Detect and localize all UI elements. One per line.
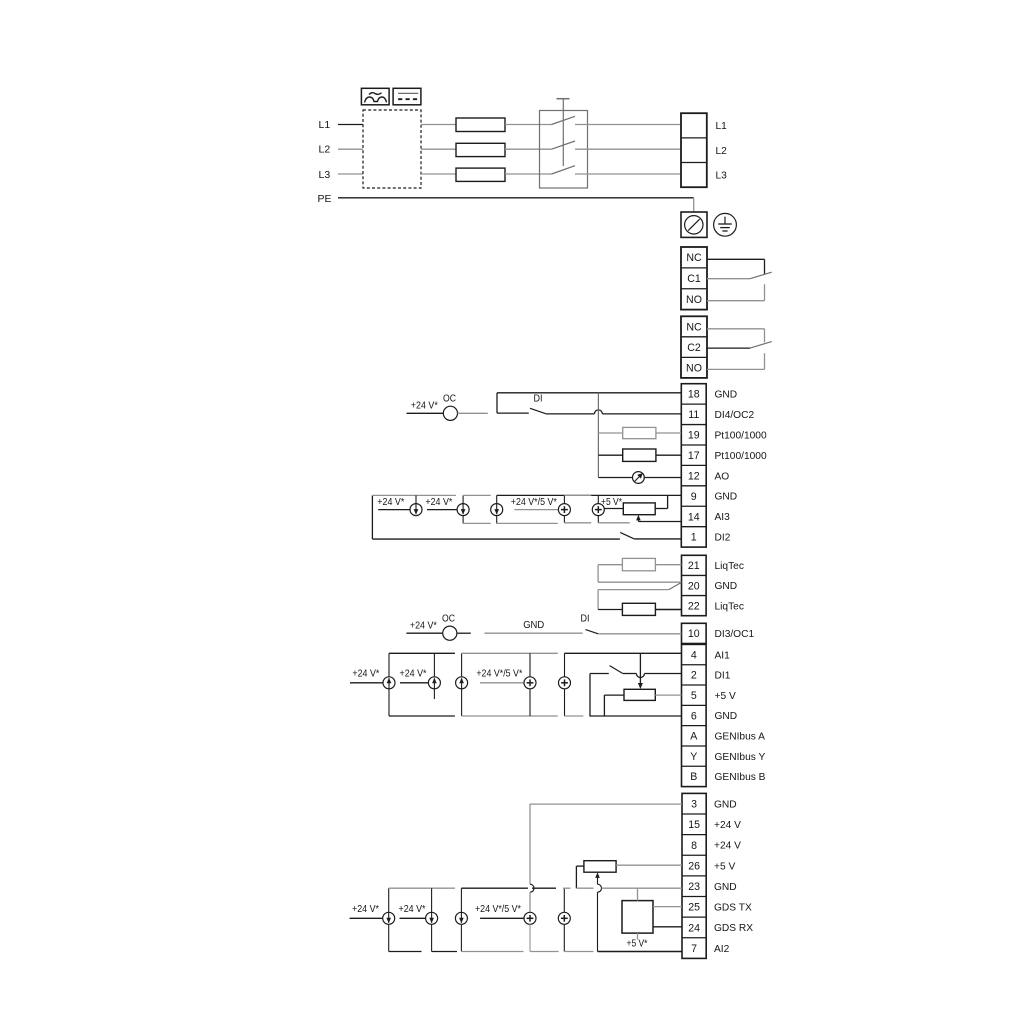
svg-text:11: 11 [688,409,699,421]
svg-text:+24 V*/5 V*: +24 V*/5 V* [476,668,522,680]
svg-text:+24 V: +24 V [714,820,741,831]
svg-text:GDS TX: GDS TX [714,903,752,914]
svg-text:Pt100/1000: Pt100/1000 [715,451,767,462]
svg-text:Y: Y [690,751,697,763]
svg-text:19: 19 [688,430,700,442]
svg-text:C2: C2 [687,342,701,354]
svg-text:22: 22 [688,600,700,612]
svg-text:GND: GND [715,581,738,592]
svg-text:NC: NC [686,321,702,333]
svg-text:+24 V*: +24 V* [410,620,437,632]
svg-text:10: 10 [688,628,700,640]
svg-text:DI: DI [534,394,543,405]
svg-text:+5 V*: +5 V* [627,939,648,950]
svg-text:NC: NC [686,252,702,264]
svg-text:2: 2 [691,670,697,682]
svg-text:23: 23 [688,881,700,893]
svg-text:5: 5 [691,690,697,702]
svg-text:AO: AO [715,471,730,482]
svg-text:12: 12 [688,470,700,482]
svg-text:GENIbus A: GENIbus A [715,732,766,743]
svg-text:9: 9 [691,491,697,503]
svg-text:LiqTec: LiqTec [715,601,744,612]
svg-text:4: 4 [691,649,697,661]
svg-text:+24 V*: +24 V* [425,496,452,508]
svg-text:GND: GND [715,492,738,503]
svg-text:DI2: DI2 [715,533,731,544]
svg-text:+24 V*: +24 V* [400,668,427,680]
svg-text:AI3: AI3 [715,512,731,523]
svg-text:GND: GND [714,799,737,810]
svg-text:OC: OC [442,613,455,624]
svg-text:LiqTec: LiqTec [715,561,744,572]
svg-text:18: 18 [688,389,700,401]
svg-text:+24 V*/5 V*: +24 V*/5 V* [475,903,521,915]
svg-text:15: 15 [688,819,700,831]
svg-text:GND: GND [714,882,737,893]
svg-text:+24 V*: +24 V* [352,903,379,915]
svg-text:L2: L2 [319,144,331,156]
svg-text:Pt100/1000: Pt100/1000 [715,430,767,441]
svg-text:1: 1 [691,532,697,544]
svg-text:14: 14 [688,511,700,523]
svg-text:C1: C1 [687,273,701,285]
svg-text:B: B [690,771,697,783]
svg-text:21: 21 [688,560,700,572]
svg-text:GND: GND [715,711,738,722]
svg-text:L1: L1 [716,121,728,132]
svg-text:20: 20 [688,580,700,592]
svg-text:L3: L3 [319,169,331,181]
svg-text:AI2: AI2 [714,944,730,955]
svg-text:+24 V*: +24 V* [352,668,379,680]
svg-text:GND: GND [523,620,544,631]
svg-text:DI4/OC2: DI4/OC2 [715,410,755,421]
svg-text:GENIbus B: GENIbus B [715,772,766,783]
svg-text:+24 V*: +24 V* [377,496,404,508]
svg-text:L2: L2 [716,146,728,157]
svg-text:+24 V*: +24 V* [399,903,426,915]
svg-text:6: 6 [691,710,697,722]
svg-text:NO: NO [686,294,702,306]
svg-text:AI1: AI1 [715,650,731,661]
svg-text:L1: L1 [319,119,331,131]
svg-text:OC: OC [443,394,456,405]
svg-text:+24 V*: +24 V* [411,400,438,412]
svg-text:+5 V: +5 V [714,861,735,872]
svg-text:DI3/OC1: DI3/OC1 [715,629,755,640]
svg-text:GENIbus Y: GENIbus Y [715,752,766,763]
svg-text:17: 17 [688,450,700,462]
svg-text:+5 V: +5 V [715,691,736,702]
svg-text:NO: NO [686,362,702,374]
svg-text:DI1: DI1 [715,671,731,682]
svg-text:A: A [690,731,698,743]
svg-text:8: 8 [691,840,697,852]
svg-text:DI: DI [581,613,590,624]
svg-text:+24 V*/5 V*: +24 V*/5 V* [511,496,557,508]
svg-text:+24 V: +24 V [714,841,741,852]
svg-text:L3: L3 [716,171,728,182]
svg-text:26: 26 [688,860,700,872]
svg-text:25: 25 [688,902,700,914]
svg-text:+5 V*: +5 V* [601,496,622,508]
svg-text:PE: PE [318,193,332,205]
svg-text:7: 7 [691,943,697,955]
svg-text:GDS RX: GDS RX [714,923,753,934]
svg-text:GND: GND [715,390,738,401]
svg-text:24: 24 [688,922,700,934]
svg-text:3: 3 [691,799,697,811]
